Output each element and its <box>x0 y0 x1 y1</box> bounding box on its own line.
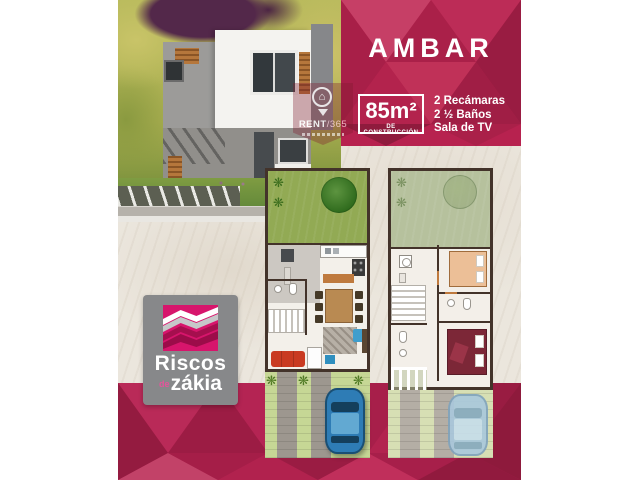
utility-cabinet <box>399 273 406 283</box>
powder-room-sink <box>274 285 282 293</box>
kitchen-sink <box>325 248 331 254</box>
plant-icon: ❋ <box>273 196 284 209</box>
tv-unit <box>362 329 367 353</box>
interior-wall <box>305 279 307 335</box>
plant-icon: ❋ <box>273 176 284 189</box>
pillow <box>475 335 484 348</box>
chair <box>355 303 363 311</box>
car-roof <box>454 419 482 440</box>
area-label: DE CONSTRUCCIÓN <box>360 124 422 136</box>
living-room-rug <box>323 327 357 354</box>
bed-master <box>447 329 487 375</box>
pillow <box>476 255 484 267</box>
sofa <box>271 351 305 367</box>
tree-icon <box>321 177 357 213</box>
feature-item: 2 Recámaras <box>434 95 505 109</box>
feature-item: Sala de TV <box>434 122 505 136</box>
flyer-card: AMBAR 85m² DE CONSTRUCCIÓN 2 Recámaras 2… <box>118 0 521 480</box>
rent365-watermark: ⌂ RENT/365 <box>293 83 353 145</box>
entry-door-leaf <box>307 347 322 369</box>
toilet <box>289 283 297 295</box>
feature-item: 2 ½ Baños <box>434 109 505 123</box>
brand-suffix: /365 <box>327 119 348 130</box>
house-pin-icon: ⌂ <box>312 87 332 107</box>
stairs <box>268 309 305 333</box>
upper-floor-walls: ❋ ❋ <box>388 168 493 390</box>
interior-wall <box>391 323 427 325</box>
car-rear-window <box>331 436 359 443</box>
area-value: 85m² <box>360 99 422 123</box>
mountain-logo-icon <box>163 305 218 351</box>
plant-icon: ❋ <box>266 374 277 387</box>
car-rear-window <box>454 442 482 449</box>
model-title: AMBAR <box>341 33 521 64</box>
backyard-garden: ❋ ❋ <box>268 171 367 245</box>
area-box: 85m² DE CONSTRUCCIÓN <box>358 94 424 134</box>
bed-secondary <box>449 251 487 287</box>
car-windshield <box>454 408 482 418</box>
plant-icon: ❋ <box>396 176 407 189</box>
dining-table <box>325 289 353 323</box>
bath-sink <box>447 299 455 307</box>
small-window <box>164 60 184 82</box>
brand-name: RENT <box>299 119 327 130</box>
kitchen-bar <box>323 274 354 283</box>
washer <box>399 255 412 268</box>
car-graphic <box>325 388 365 454</box>
refrigerator <box>281 249 294 262</box>
toilet <box>399 331 407 343</box>
garden-below-view: ❋ ❋ <box>391 171 490 249</box>
upper-window <box>250 50 298 95</box>
interior-wall <box>437 245 439 381</box>
chair <box>315 303 323 311</box>
front-yard: ❋ ❋ ❋ <box>265 372 370 458</box>
chair <box>315 291 323 299</box>
bath-sink <box>399 349 407 357</box>
floorplan-upper: ❋ ❋ <box>388 168 493 458</box>
kitchen-sink <box>333 248 339 254</box>
car-graphic-faded <box>448 394 488 456</box>
interior-wall <box>268 279 306 281</box>
logo-de-text: de <box>159 379 170 389</box>
tree-icon <box>443 175 477 209</box>
watermark-brand: RENT/365 <box>293 119 353 130</box>
chair <box>315 315 323 323</box>
bed-throw <box>449 342 468 364</box>
floorplan-ground: ❋ ❋ <box>265 168 370 458</box>
plant-icon: ❋ <box>396 196 407 209</box>
pillow <box>475 354 484 367</box>
washer-door <box>402 258 411 267</box>
ground-floor-walls: ❋ ❋ <box>265 168 370 372</box>
photo-driveway <box>118 186 240 206</box>
kitchen-counter <box>320 245 367 258</box>
car-windshield <box>331 402 359 412</box>
plant-icon: ❋ <box>353 374 364 387</box>
pin-point-icon <box>318 109 328 116</box>
logo-zakia-word: zákia <box>171 372 222 395</box>
header-panel: AMBAR 85m² DE CONSTRUCCIÓN 2 Recámaras 2… <box>341 0 521 146</box>
logo-zakia-text: dezákia <box>143 373 238 395</box>
interior-wall <box>437 321 490 323</box>
chair <box>355 315 363 323</box>
feature-list: 2 Recámaras 2 ½ Baños Sala de TV <box>434 95 505 136</box>
front-yard-below-view <box>388 390 493 458</box>
car-roof <box>331 413 359 434</box>
chair <box>355 291 363 299</box>
riscos-logo: Riscos dezákia <box>143 295 238 405</box>
stairs <box>391 285 426 321</box>
plant-icon: ❋ <box>298 374 309 387</box>
side-table <box>325 355 335 364</box>
toilet <box>463 298 471 310</box>
pillow <box>476 271 484 283</box>
door-jamb <box>437 271 439 285</box>
watermark-tagline <box>302 133 344 136</box>
house-glyph: ⌂ <box>319 91 326 103</box>
flyer-canvas: AMBAR 85m² DE CONSTRUCCIÓN 2 Recámaras 2… <box>0 0 640 480</box>
door-jamb <box>445 292 457 294</box>
balcony-railing <box>391 367 427 390</box>
